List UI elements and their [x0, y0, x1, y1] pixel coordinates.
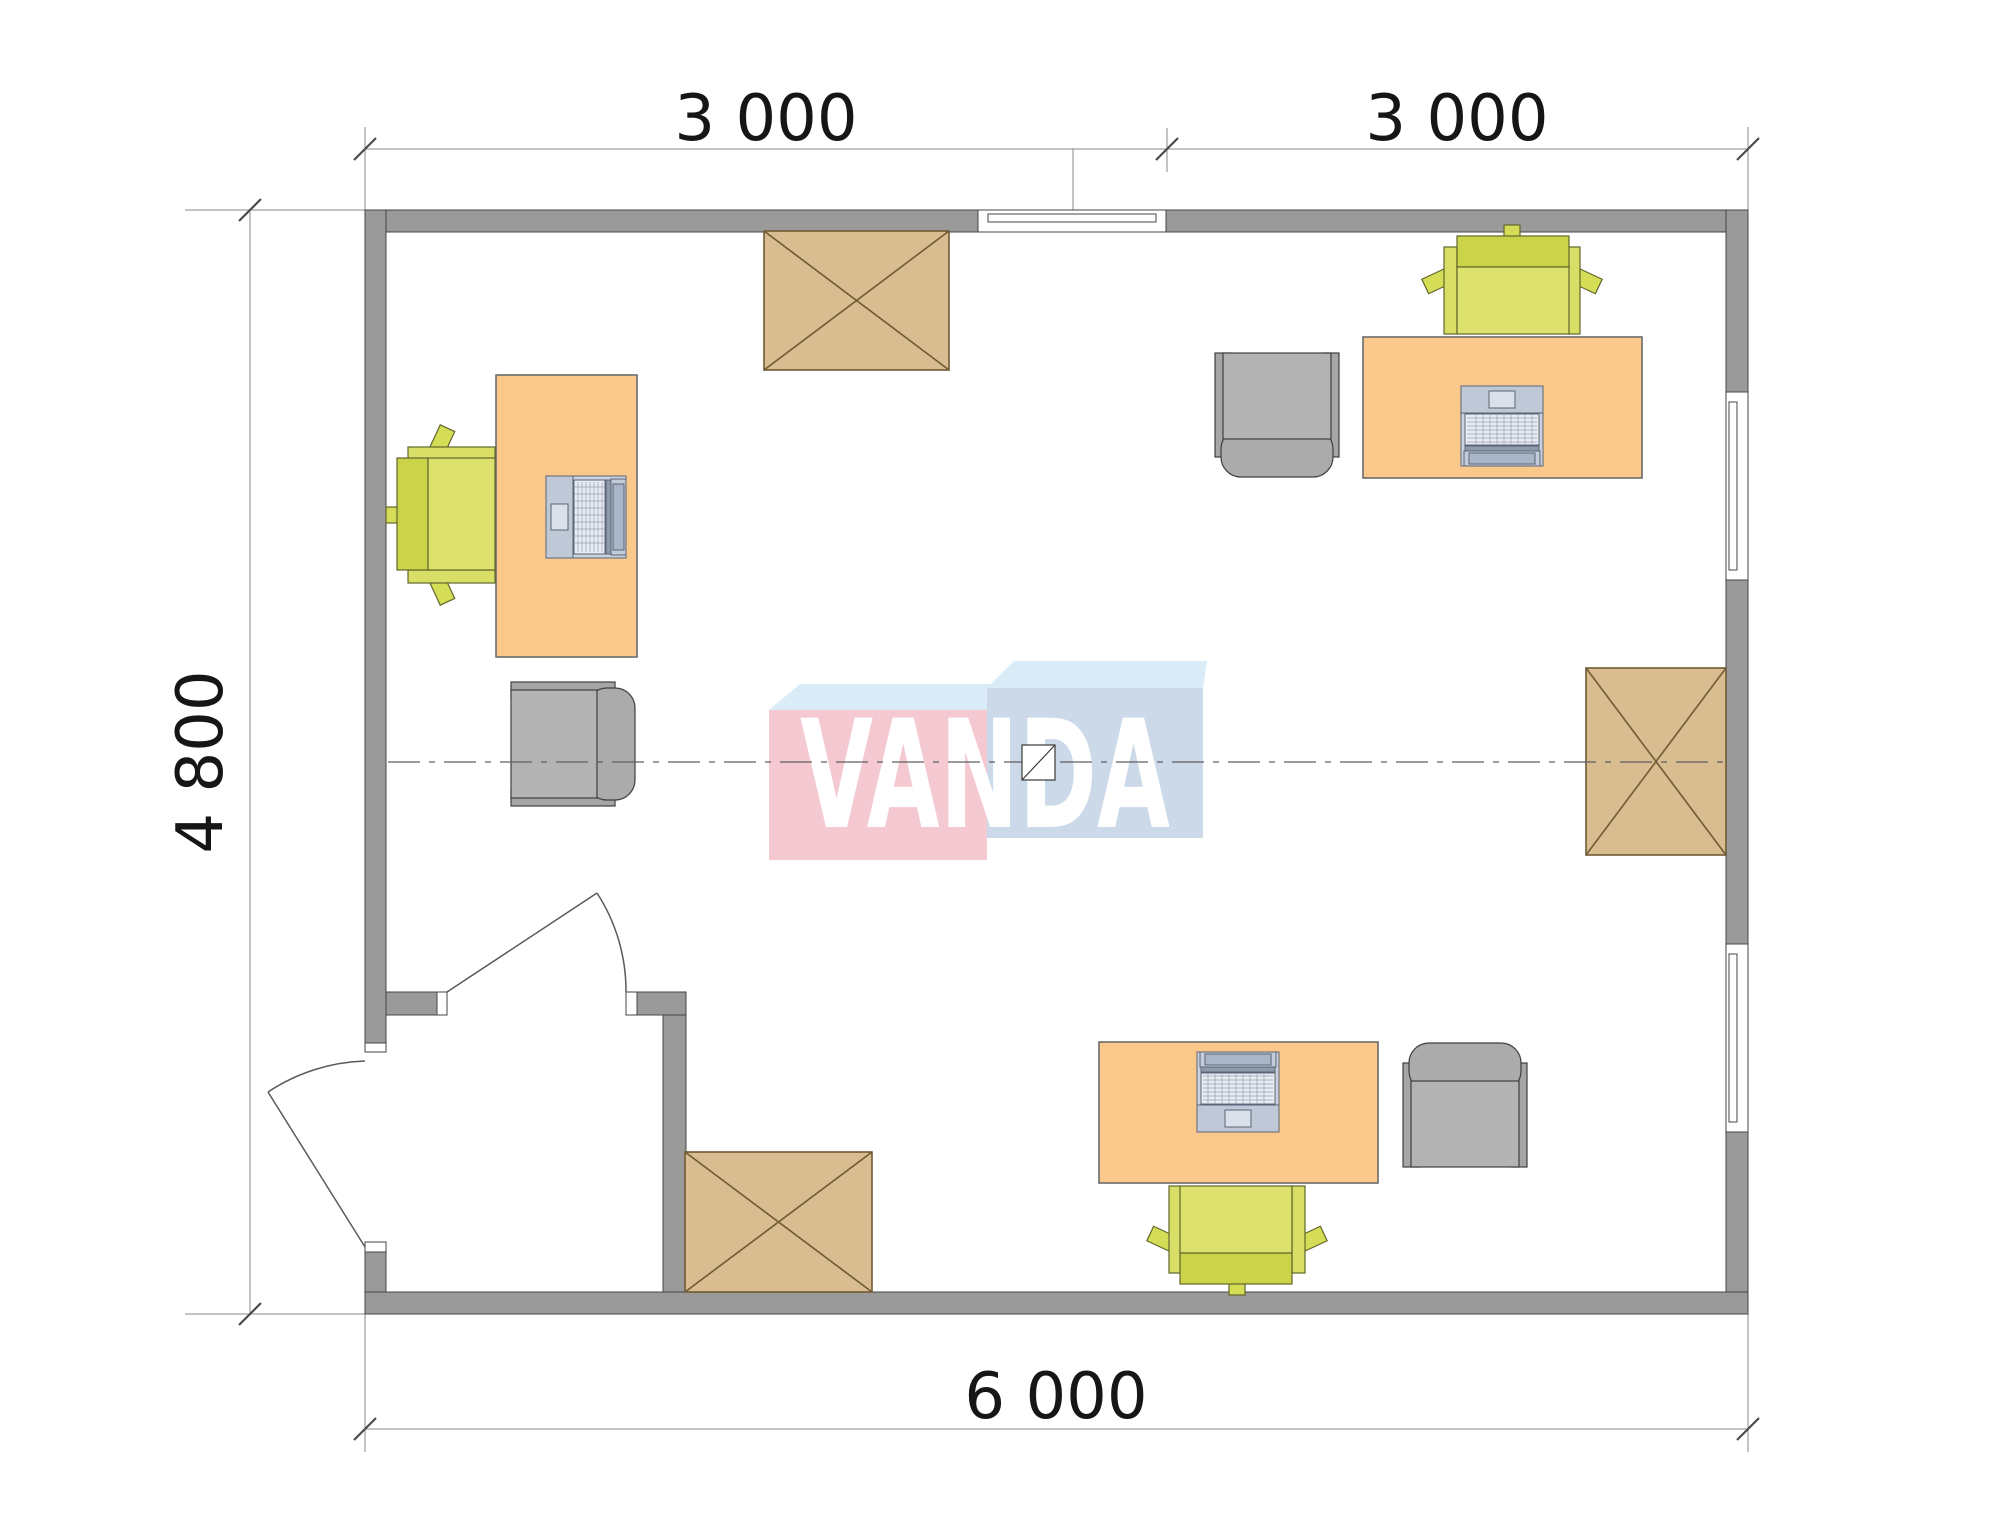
jamb [626, 992, 637, 1015]
door-jambs [365, 992, 637, 1252]
wall-top-left-segment [365, 210, 978, 232]
wall-left-lower-stub [365, 1252, 386, 1292]
dim-label-top-right: 3 000 [1365, 82, 1548, 156]
armchair-top [1215, 353, 1339, 477]
window-top [978, 210, 1166, 232]
door-swing-exterior [268, 1061, 365, 1247]
window-right-upper [1726, 392, 1748, 580]
office-chair-bottom [1147, 1186, 1327, 1295]
jamb [365, 1242, 386, 1252]
wall-right-middle [1726, 580, 1748, 944]
partition-wall-stub-right [637, 992, 686, 1015]
dim-label-left: 4 800 [164, 670, 238, 853]
wall-left-upper [365, 210, 386, 1043]
doors [268, 893, 626, 1247]
window-right-lower [1726, 944, 1748, 1132]
dim-label-bottom: 6 000 [964, 1360, 1147, 1434]
door-swing-interior [447, 893, 626, 992]
dimension-bottom: 6 000 [354, 1314, 1759, 1452]
dimension-top: 3 000 3 000 [354, 82, 1759, 210]
floor-plan-page: 3 000 3 000 4 800 6 000 [0, 0, 2000, 1520]
partition-wall-vertical [663, 1015, 686, 1292]
wall-bottom [365, 1292, 1748, 1314]
laptop-left-desk [546, 476, 626, 558]
dim-label-top-left: 3 000 [674, 82, 857, 156]
wall-top-right-segment [1166, 210, 1748, 232]
wall-right-upper [1726, 210, 1748, 392]
laptop-bottom-desk [1197, 1052, 1279, 1132]
office-chair-top [1422, 225, 1602, 334]
wall-right-lower [1726, 1132, 1748, 1292]
logo-right-top-face [987, 661, 1207, 688]
module-joint-symbol [1022, 745, 1055, 780]
partition-wall-stub-left [386, 992, 437, 1015]
crossed-table-bottom-left [685, 1152, 872, 1292]
crossed-table-top [764, 231, 949, 370]
floor-plan-canvas: 3 000 3 000 4 800 6 000 [0, 0, 2000, 1520]
jamb [437, 992, 447, 1015]
laptop-top-desk [1461, 386, 1543, 466]
armchair-left [511, 682, 635, 806]
office-chair-left [386, 425, 495, 605]
logo-text: VANDA [800, 689, 1170, 863]
jamb [365, 1043, 386, 1052]
armchair-bottom [1403, 1043, 1527, 1167]
